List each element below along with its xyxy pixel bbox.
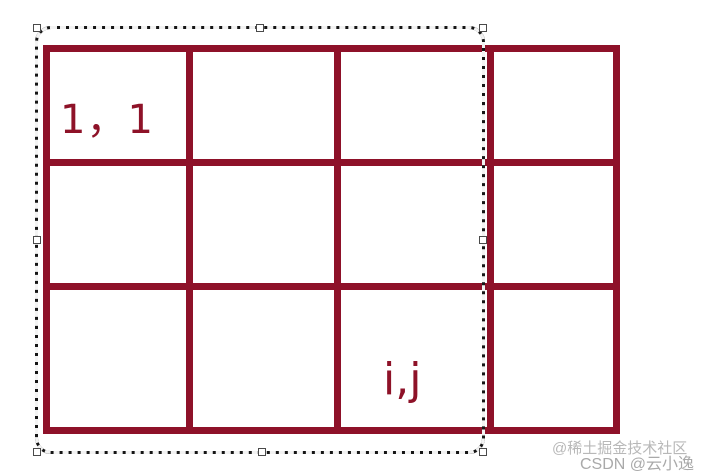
watermark-csdn: CSDN @云小逸 xyxy=(580,450,694,474)
cell-label-i-j: i,j xyxy=(383,358,421,402)
grid-line-vertical-3 xyxy=(487,45,494,434)
cell-label-1-1: 1，1 xyxy=(60,100,154,140)
selection-handle-middle-right[interactable] xyxy=(479,236,487,244)
selection-handle-top-left[interactable] xyxy=(33,24,41,32)
grid-border-right xyxy=(613,45,620,434)
selection-handle-middle-left[interactable] xyxy=(33,236,41,244)
selection-handle-top-center[interactable] xyxy=(256,24,264,32)
selection-handle-top-right[interactable] xyxy=(479,24,487,32)
selection-handle-bottom-right[interactable] xyxy=(479,448,487,456)
selection-handle-bottom-left[interactable] xyxy=(33,448,41,456)
selection-handle-bottom-center[interactable] xyxy=(258,448,266,456)
canvas: 1，1 i,j @稀土掘金技术社区 CSDN @云小逸 xyxy=(0,0,701,475)
